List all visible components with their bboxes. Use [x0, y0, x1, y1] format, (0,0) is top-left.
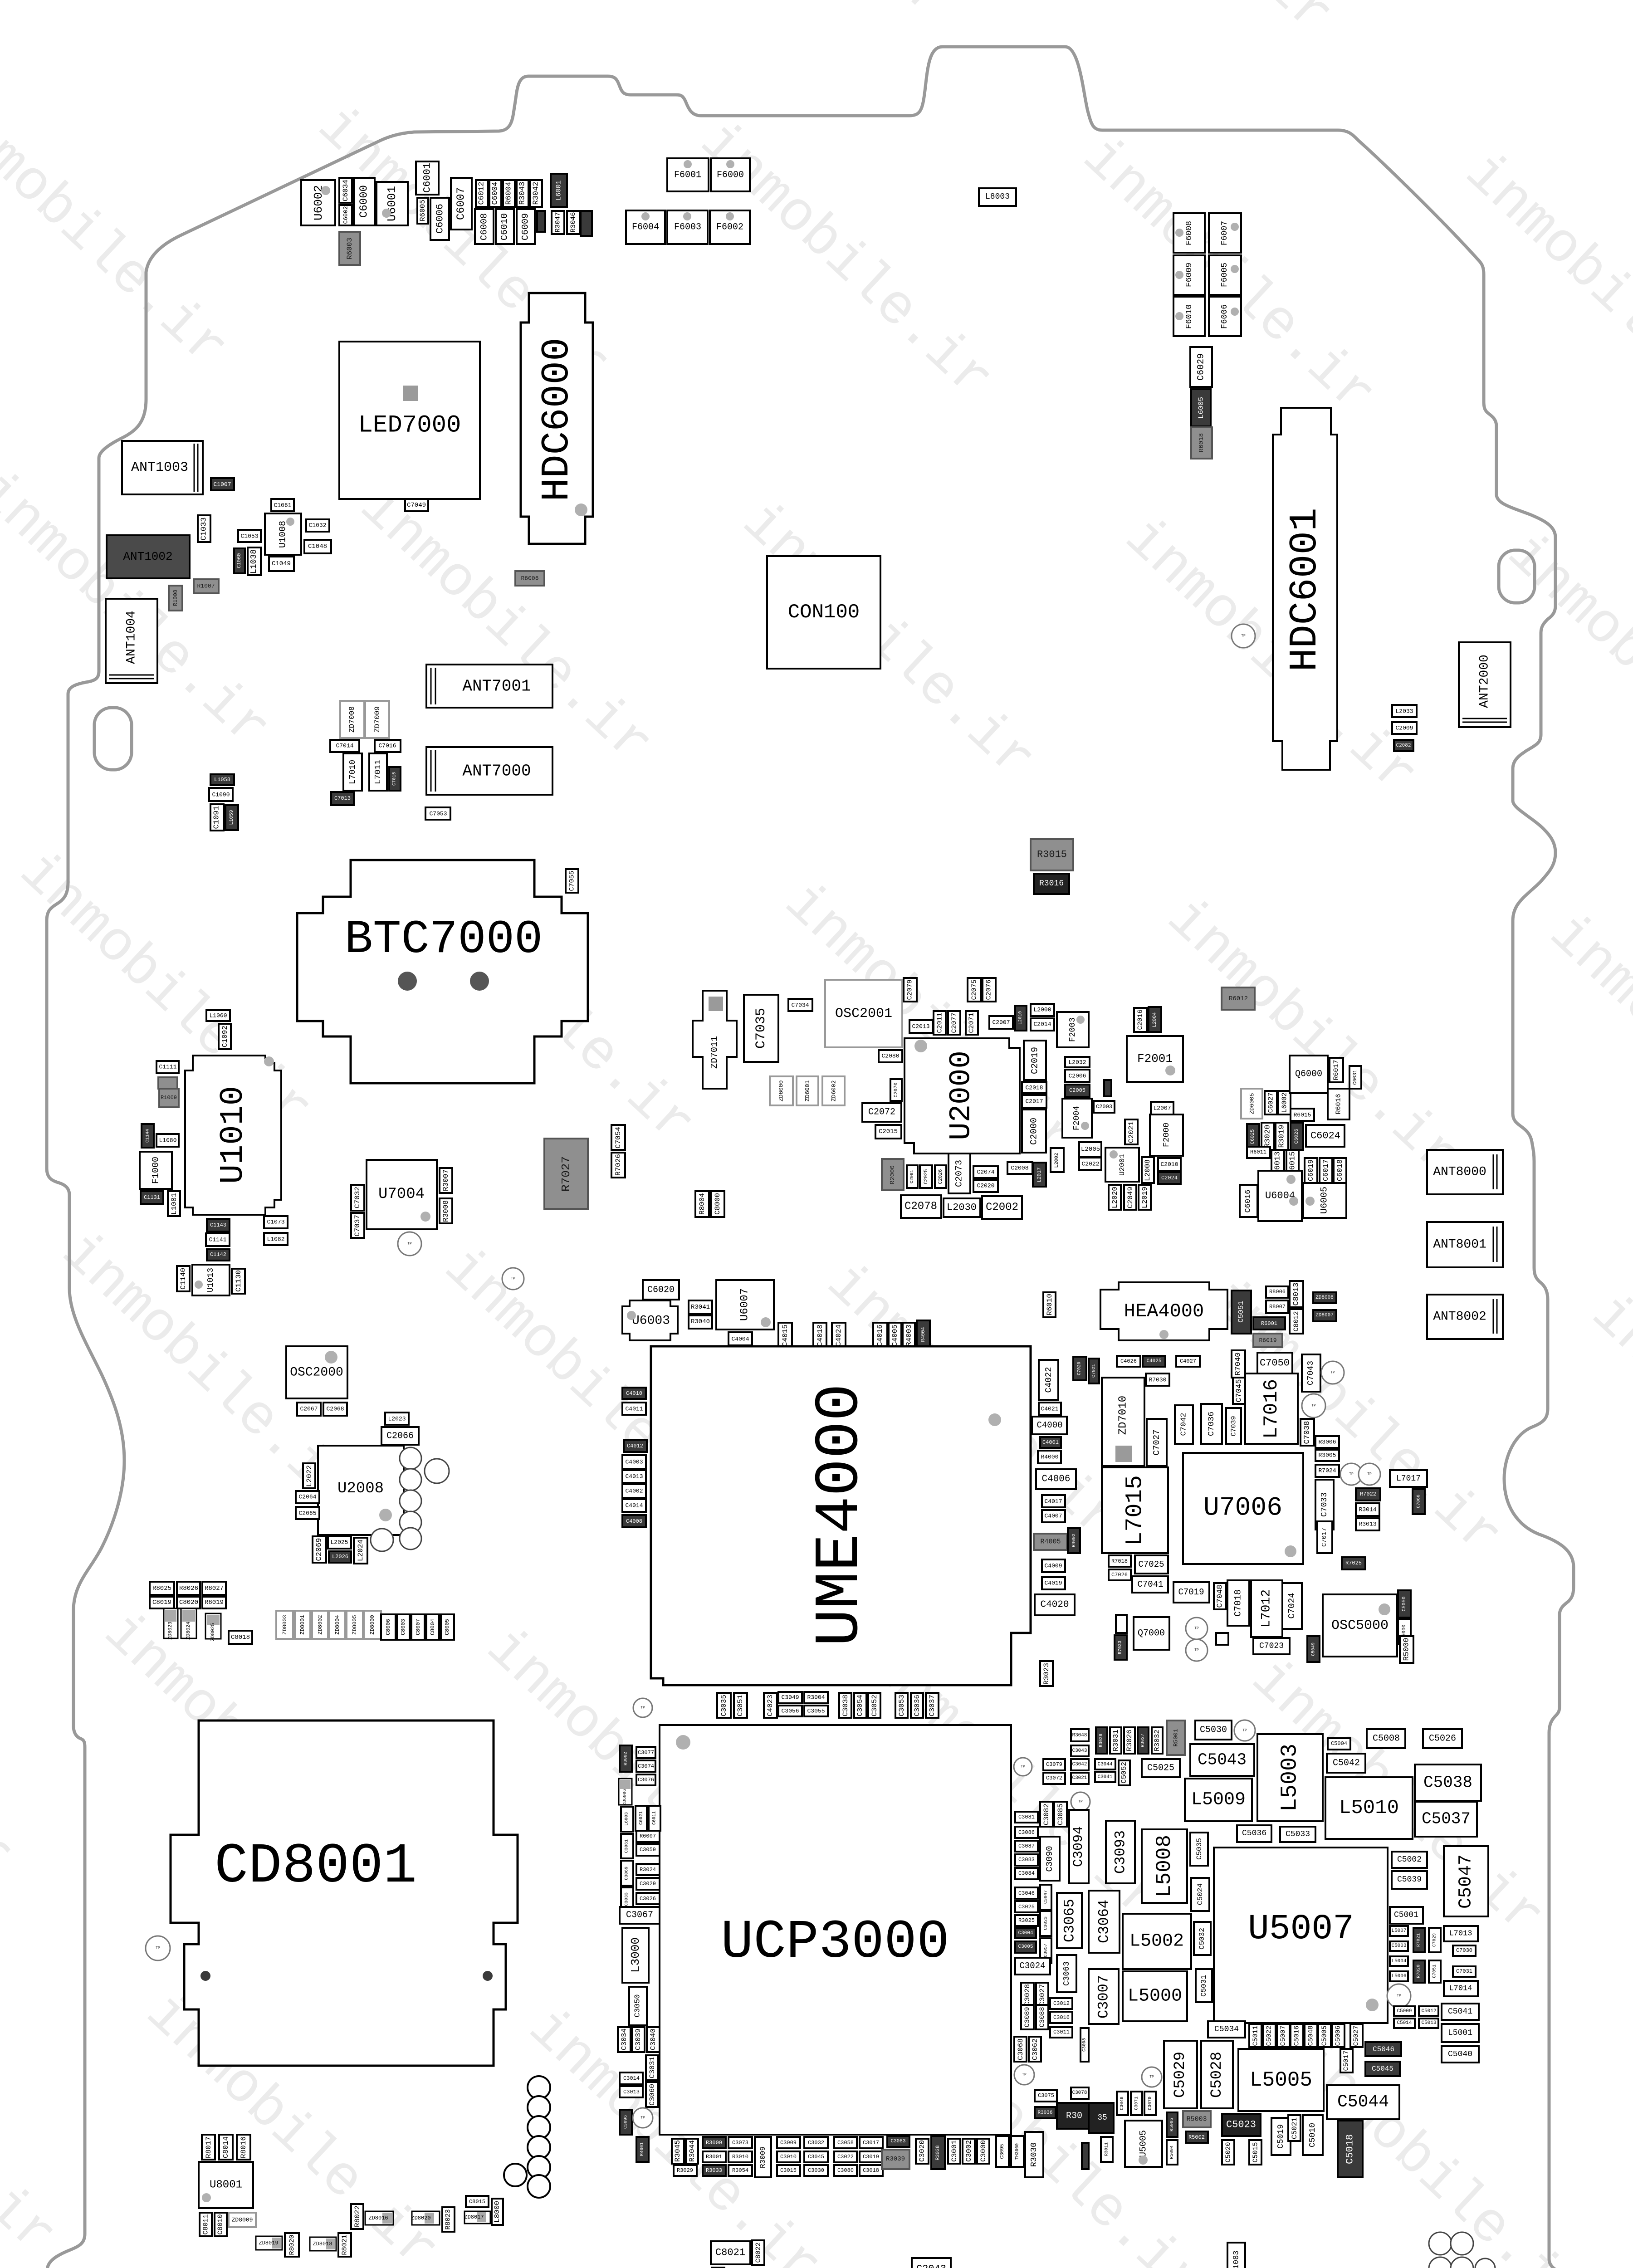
- svg-text:U5005: U5005: [1139, 2130, 1149, 2157]
- svg-text:C3063: C3063: [1062, 1961, 1071, 1986]
- svg-text:R8007: R8007: [1269, 1304, 1286, 1310]
- svg-text:C3012: C3012: [1053, 2000, 1070, 2007]
- svg-text:R7026: R7026: [614, 1154, 622, 1176]
- svg-text:ZD7010: ZD7010: [1117, 1396, 1129, 1435]
- svg-text:L7011: L7011: [374, 760, 383, 784]
- svg-text:C5007: C5007: [1280, 2025, 1287, 2046]
- svg-text:C7045: C7045: [1235, 1379, 1244, 1402]
- svg-text:C1140: C1140: [179, 1268, 187, 1290]
- svg-text:C4002: C4002: [625, 1488, 643, 1495]
- svg-text:inmobile.ir: inmobile.ir: [0, 1585, 26, 1887]
- svg-text:C7066: C7066: [1417, 1495, 1422, 1508]
- svg-text:C2082: C2082: [1396, 743, 1411, 748]
- svg-text:R3046: R3046: [570, 212, 577, 232]
- svg-text:C1131: C1131: [144, 1194, 160, 1201]
- svg-text:ZD6000: ZD6000: [778, 1080, 785, 1102]
- svg-text:C1007: C1007: [213, 481, 231, 488]
- svg-text:R3033: R3033: [706, 2167, 722, 2174]
- svg-text:C4017: C4017: [1044, 1498, 1062, 1505]
- svg-text:TP: TP: [640, 1706, 645, 1710]
- svg-text:TH3000: TH3000: [1015, 2143, 1020, 2160]
- svg-text:C2080: C2080: [881, 1053, 899, 1060]
- svg-text:R3039: R3039: [886, 2156, 905, 2163]
- svg-text:C3023: C3023: [1044, 1916, 1049, 1930]
- svg-text:ZD8001: ZD8001: [299, 1615, 306, 1634]
- svg-text:R8019: R8019: [205, 1599, 224, 1606]
- svg-text:C6019: C6019: [1307, 1159, 1315, 1181]
- svg-text:R3045: R3045: [674, 2140, 682, 2162]
- svg-text:C5023: C5023: [1226, 2119, 1256, 2131]
- svg-text:TP: TP: [1349, 1472, 1354, 1476]
- svg-text:L5004: L5004: [1391, 1959, 1406, 1964]
- svg-text:U1008: U1008: [278, 521, 288, 548]
- svg-text:C3007: C3007: [1095, 1975, 1112, 2019]
- svg-text:R3011: R3011: [1105, 2142, 1110, 2156]
- svg-text:C1091: C1091: [213, 806, 221, 829]
- svg-text:U8001: U8001: [210, 2179, 242, 2191]
- svg-text:inmobile.ir: inmobile.ir: [645, 0, 962, 32]
- svg-text:ZD6002: ZD6002: [831, 1080, 837, 1102]
- svg-text:R3027: R3027: [1141, 1734, 1146, 1747]
- svg-text:R6016: R6016: [1335, 1094, 1343, 1114]
- svg-text:C2002: C2002: [986, 1202, 1018, 1214]
- svg-text:C3087: C3087: [1018, 1843, 1035, 1849]
- svg-text:C7055: C7055: [568, 870, 576, 891]
- svg-text:C3082: C3082: [1042, 1804, 1051, 1825]
- svg-text:C3033: C3033: [625, 1892, 630, 1906]
- svg-text:C3045: C3045: [808, 2154, 824, 2160]
- svg-text:C2021: C2021: [1127, 1121, 1135, 1143]
- svg-text:C5035: C5035: [1195, 1838, 1203, 1860]
- svg-text:C7050: C7050: [1260, 1358, 1290, 1369]
- svg-text:TP: TP: [511, 1277, 515, 1281]
- svg-text:C7042: C7042: [1180, 1413, 1188, 1436]
- svg-text:R6007: R6007: [640, 1833, 656, 1839]
- svg-text:C4016: C4016: [876, 1325, 884, 1346]
- svg-text:C5045: C5045: [1372, 2065, 1393, 2073]
- svg-text:R3043: R3043: [518, 181, 527, 205]
- svg-text:ZD8004: ZD8004: [334, 1615, 341, 1634]
- svg-text:F2003: F2003: [1068, 1017, 1077, 1042]
- svg-text:C8021: C8021: [715, 2247, 745, 2258]
- svg-text:C5016: C5016: [1293, 2025, 1301, 2046]
- svg-text:F2000: F2000: [1162, 1123, 1171, 1147]
- svg-text:C7024: C7024: [1287, 1593, 1297, 1618]
- svg-text:R4005: R4005: [1040, 1538, 1061, 1546]
- svg-text:C7027: C7027: [1152, 1429, 1162, 1455]
- svg-text:L2004: L2004: [1152, 1012, 1158, 1027]
- svg-text:R2000: R2000: [889, 1165, 896, 1184]
- svg-text:C7023: C7023: [1259, 1642, 1284, 1651]
- svg-text:LED7000: LED7000: [358, 412, 461, 440]
- svg-text:TP: TP: [156, 1946, 160, 1950]
- svg-text:R30: R30: [1066, 2111, 1082, 2121]
- svg-text:L8003: L8003: [985, 192, 1010, 201]
- svg-text:L7016: L7016: [1260, 1379, 1283, 1439]
- svg-text:C5038: C5038: [1423, 1774, 1472, 1792]
- svg-text:R6010: R6010: [1046, 1294, 1054, 1315]
- svg-text:C5020: C5020: [1225, 2142, 1232, 2162]
- svg-text:C7025: C7025: [1138, 1559, 1164, 1569]
- svg-text:F2001: F2001: [1137, 1052, 1173, 1066]
- svg-text:R7040: R7040: [1234, 1352, 1243, 1375]
- svg-text:R3025: R3025: [1018, 1917, 1035, 1924]
- svg-text:C6026: C6026: [1294, 1129, 1300, 1144]
- svg-text:C8013: C8013: [1292, 1282, 1301, 1305]
- svg-text:C3077: C3077: [638, 1750, 654, 1756]
- svg-text:L7017: L7017: [1396, 1474, 1421, 1483]
- svg-text:C1144: C1144: [146, 1129, 151, 1143]
- svg-text:C2081: C2081: [910, 1170, 915, 1183]
- svg-text:C3041: C3041: [1097, 1774, 1112, 1780]
- svg-text:C1130: C1130: [235, 1270, 243, 1292]
- svg-text:L1058: L1058: [214, 777, 230, 783]
- svg-text:C7041: C7041: [1137, 1579, 1163, 1589]
- svg-text:C3086: C3086: [1018, 1829, 1035, 1836]
- svg-text:C6008: C6008: [479, 213, 490, 240]
- svg-text:C2049: C2049: [1126, 1187, 1134, 1208]
- svg-text:TP: TP: [1022, 2073, 1027, 2077]
- svg-text:ANT2000: ANT2000: [1478, 655, 1492, 708]
- svg-text:R3038: R3038: [935, 2145, 941, 2160]
- svg-text:R6005: R6005: [419, 200, 427, 221]
- svg-text:ZD8007: ZD8007: [1315, 1313, 1334, 1318]
- svg-text:ZD8025: ZD8025: [210, 1623, 216, 1641]
- svg-text:C6009: C6009: [521, 213, 531, 240]
- svg-text:C8010: C8010: [217, 2214, 225, 2234]
- svg-text:C8019: C8019: [152, 1599, 171, 1606]
- svg-text:C1033: C1033: [200, 517, 209, 540]
- svg-text:C8015: C8015: [469, 2199, 485, 2205]
- svg-text:L7013: L7013: [1449, 1930, 1472, 1938]
- svg-text:C4007: C4007: [1044, 1513, 1062, 1520]
- svg-text:C5051: C5051: [1237, 1301, 1245, 1323]
- svg-text:C1060: C1060: [237, 553, 242, 568]
- svg-text:C3062: C3062: [1031, 2038, 1039, 2060]
- svg-text:C2026: C2026: [938, 1169, 944, 1184]
- svg-text:R6018: R6018: [1198, 433, 1205, 452]
- svg-text:C2024: C2024: [1161, 1175, 1178, 1181]
- svg-text:C7016: C7016: [378, 743, 396, 749]
- svg-text:C3032: C3032: [808, 2140, 824, 2146]
- svg-text:C3061: C3061: [625, 1839, 630, 1853]
- svg-text:R8022: R8022: [353, 2205, 362, 2227]
- svg-text:L5007: L5007: [1391, 1928, 1406, 1934]
- svg-text:C7031: C7031: [1456, 1968, 1472, 1975]
- svg-text:L2007: L2007: [1153, 1105, 1171, 1112]
- svg-text:U2001: U2001: [1118, 1154, 1126, 1176]
- svg-text:C4024: C4024: [835, 1325, 843, 1346]
- svg-text:TP: TP: [1242, 1729, 1247, 1733]
- svg-text:ANT1004: ANT1004: [125, 611, 139, 664]
- svg-text:R8020: R8020: [288, 2234, 296, 2255]
- svg-text:C7038: C7038: [1303, 1421, 1312, 1444]
- svg-text:ZD7011: ZD7011: [710, 1036, 720, 1069]
- svg-text:C4019: C4019: [1044, 1580, 1062, 1587]
- svg-text:CON100: CON100: [788, 601, 860, 624]
- svg-text:C2007: C2007: [992, 1019, 1010, 1026]
- svg-text:C2019: C2019: [1030, 1047, 1041, 1074]
- svg-text:ZD8005: ZD8005: [352, 1615, 358, 1634]
- svg-text:C2069: C2069: [315, 1538, 324, 1561]
- svg-text:inmobile.ir: inmobile.ir: [1494, 521, 1633, 824]
- svg-text:C1090: C1090: [212, 792, 230, 798]
- svg-text:C3026: C3026: [640, 1896, 656, 1902]
- svg-text:L7015: L7015: [1122, 1475, 1149, 1546]
- svg-text:ZD7008: ZD7008: [348, 706, 356, 733]
- svg-text:U7004: U7004: [378, 1186, 425, 1203]
- svg-text:C6016: C6016: [1244, 1189, 1253, 1212]
- svg-text:R7033: R7033: [1118, 1641, 1123, 1654]
- svg-text:C3083: C3083: [890, 2139, 905, 2144]
- svg-text:ZD7009: ZD7009: [373, 706, 381, 733]
- svg-text:C5028: C5028: [1208, 2052, 1226, 2098]
- svg-text:L2019: L2019: [1141, 1187, 1149, 1208]
- svg-text:L7012: L7012: [1260, 1589, 1274, 1628]
- svg-text:C2009: C2009: [1395, 725, 1413, 732]
- svg-text:C4009: C4009: [1044, 1563, 1062, 1569]
- svg-text:C5011: C5011: [1252, 2025, 1260, 2046]
- svg-text:TP: TP: [640, 2116, 645, 2120]
- svg-text:F6010: F6010: [1185, 304, 1194, 329]
- svg-text:L2030: L2030: [947, 1202, 977, 1213]
- svg-text:R3014: R3014: [1359, 1506, 1376, 1513]
- svg-text:C7053: C7053: [429, 811, 447, 817]
- svg-text:R3026: R3026: [1125, 1730, 1134, 1751]
- svg-text:U1013: U1013: [206, 1268, 215, 1292]
- svg-text:L6003: L6003: [625, 1812, 630, 1826]
- svg-text:C3020: C3020: [918, 2140, 926, 2162]
- svg-text:C3070: C3070: [1148, 2097, 1153, 2110]
- svg-text:C3042: C3042: [1072, 1762, 1087, 1767]
- svg-text:R3007: R3007: [442, 1169, 450, 1191]
- svg-text:ZD8018: ZD8018: [313, 2241, 332, 2247]
- svg-text:C7051: C7051: [1433, 1965, 1437, 1978]
- svg-text:C2066: C2066: [386, 1431, 414, 1442]
- svg-text:C5015: C5015: [1252, 2142, 1260, 2162]
- svg-text:CD8001: CD8001: [215, 1835, 417, 1899]
- svg-text:C5047: C5047: [1456, 1854, 1477, 1909]
- svg-text:HEA4000: HEA4000: [1124, 1300, 1204, 1322]
- svg-text:R3009: R3009: [759, 2146, 767, 2168]
- svg-text:TP: TP: [1149, 2075, 1154, 2079]
- svg-text:ZD8020: ZD8020: [411, 2215, 430, 2221]
- svg-text:C7018: C7018: [1233, 1589, 1244, 1617]
- svg-text:R3002: R3002: [624, 1752, 629, 1765]
- svg-text:C5024: C5024: [1196, 1883, 1204, 1905]
- svg-text:F6008: F6008: [1185, 221, 1194, 245]
- svg-text:F6006: F6006: [1220, 304, 1229, 329]
- svg-text:C3052: C3052: [870, 1695, 879, 1716]
- svg-text:C8000: C8000: [714, 1193, 722, 1215]
- svg-text:C3031: C3031: [648, 2057, 656, 2078]
- svg-text:C5025: C5025: [1147, 1763, 1174, 1774]
- svg-text:C5022: C5022: [1266, 2025, 1273, 2046]
- svg-text:ZD8016: ZD8016: [368, 2215, 388, 2221]
- svg-text:R3006: R3006: [1318, 1439, 1336, 1446]
- svg-text:C4010: C4010: [626, 1390, 642, 1397]
- svg-text:C6034: C6034: [342, 180, 350, 201]
- svg-text:R3020: R3020: [1264, 1124, 1272, 1148]
- svg-text:C3035: C3035: [720, 1695, 728, 1716]
- svg-text:C3065: C3065: [1061, 1899, 1078, 1942]
- svg-text:L5002: L5002: [1129, 1931, 1184, 1952]
- svg-text:R3016: R3016: [1039, 879, 1064, 888]
- svg-text:R3041: R3041: [691, 1304, 710, 1311]
- svg-text:C3050: C3050: [634, 1994, 642, 2017]
- svg-text:R6012: R6012: [1229, 995, 1248, 1002]
- svg-text:F6004: F6004: [632, 222, 659, 233]
- svg-text:R7025: R7025: [1345, 1560, 1362, 1566]
- svg-text:C5006: C5006: [1335, 2025, 1342, 2046]
- svg-text:C7035: C7035: [753, 1008, 769, 1049]
- svg-text:R5004: R5004: [1170, 2146, 1175, 2159]
- svg-text:R3031: R3031: [1112, 1730, 1120, 1751]
- svg-text:inmobile.ir: inmobile.ir: [0, 1965, 68, 2268]
- svg-text:C5003: C5003: [1391, 1943, 1406, 1949]
- svg-text:C5048: C5048: [1307, 2025, 1315, 2046]
- svg-text:C1111: C1111: [159, 1064, 176, 1070]
- svg-text:L1082: L1082: [267, 1236, 284, 1243]
- svg-text:C3055: C3055: [807, 1708, 825, 1715]
- svg-text:C3017: C3017: [863, 2140, 879, 2146]
- svg-text:C6020: C6020: [647, 1285, 675, 1295]
- svg-text:R8016: R8016: [240, 2136, 248, 2158]
- svg-text:C2073: C2073: [954, 1160, 965, 1187]
- svg-text:C5018: C5018: [1345, 2134, 1356, 2164]
- svg-text:C6027: C6027: [1267, 1092, 1275, 1113]
- svg-text:C3083: C3083: [1018, 1857, 1035, 1863]
- svg-text:C1092: C1092: [221, 1026, 229, 1047]
- svg-text:C2003: C2003: [1096, 1104, 1112, 1110]
- svg-text:R8006: R8006: [1269, 1289, 1286, 1295]
- svg-text:C4008: C4008: [626, 1518, 642, 1525]
- svg-text:ZD8024: ZD8024: [186, 1622, 191, 1640]
- svg-text:C2018: C2018: [1025, 1085, 1043, 1091]
- svg-text:R8004: R8004: [698, 1193, 706, 1215]
- svg-text:C1032: C1032: [308, 522, 326, 529]
- svg-text:R3040: R3040: [691, 1318, 710, 1325]
- svg-text:C8018: C8018: [231, 1634, 250, 1641]
- svg-text:R3019: R3019: [1278, 1124, 1286, 1148]
- svg-text:R3010: R3010: [732, 2154, 748, 2160]
- svg-text:C6021: C6021: [639, 1811, 644, 1825]
- svg-text:C3095: C3095: [1000, 2144, 1005, 2159]
- svg-text:TP: TP: [1194, 1627, 1199, 1631]
- svg-text:C6006: C6006: [435, 204, 446, 234]
- svg-text:inmobile.ir: inmobile.ir: [1410, 0, 1633, 63]
- svg-text:C3011: C3011: [1053, 2029, 1070, 2035]
- svg-text:C4004: C4004: [731, 1336, 749, 1343]
- svg-text:C6018: C6018: [1336, 1159, 1344, 1181]
- svg-text:R7021: R7021: [1417, 1933, 1422, 1947]
- svg-text:C3096: C3096: [624, 2115, 629, 2129]
- svg-text:C3081: C3081: [1018, 1814, 1035, 1820]
- svg-text:C3079: C3079: [1046, 1761, 1062, 1768]
- svg-text:R6004: R6004: [505, 181, 513, 205]
- svg-text:C8006: C8006: [385, 1619, 391, 1635]
- svg-text:C4026: C4026: [1120, 1358, 1137, 1364]
- svg-text:C3016: C3016: [1053, 2014, 1070, 2021]
- svg-text:C3014: C3014: [623, 2075, 640, 2082]
- svg-text:R3004: R3004: [807, 1694, 825, 1701]
- svg-text:R8023: R8023: [445, 2209, 452, 2229]
- svg-text:L2020: L2020: [1111, 1187, 1119, 1208]
- svg-text:C6012: C6012: [478, 181, 486, 205]
- svg-text:R3028: R3028: [1099, 1734, 1104, 1747]
- svg-text:C4012: C4012: [627, 1443, 643, 1449]
- svg-text:L2010: L2010: [1018, 1011, 1023, 1025]
- svg-text:C4000: C4000: [1037, 1420, 1062, 1430]
- svg-text:C3034: C3034: [620, 2028, 628, 2050]
- svg-text:C2043: C2043: [916, 2263, 946, 2268]
- svg-text:C7049: C7049: [407, 502, 426, 509]
- svg-text:C6011: C6011: [652, 1811, 657, 1825]
- svg-text:inmobile.ir: inmobile.ir: [0, 0, 197, 0]
- svg-text:C2078: C2078: [905, 1201, 937, 1213]
- svg-text:ANT7000: ANT7000: [462, 762, 531, 781]
- svg-text:C5010: C5010: [1308, 2123, 1317, 2147]
- svg-text:F6003: F6003: [674, 222, 701, 233]
- svg-text:R3048: R3048: [1072, 1733, 1087, 1738]
- svg-text:inmobile.ir: inmobile.ir: [1536, 902, 1633, 1204]
- svg-text:L2005: L2005: [1081, 1146, 1100, 1153]
- svg-text:R6017: R6017: [1333, 1060, 1340, 1080]
- svg-text:C7033: C7033: [1320, 1492, 1329, 1517]
- svg-text:R3008: R3008: [442, 1200, 450, 1222]
- svg-text:L2033: L2033: [1395, 708, 1413, 715]
- svg-text:C7036: C7036: [1207, 1412, 1216, 1436]
- svg-text:inmobile.ir: inmobile.ir: [262, 0, 580, 16]
- svg-text:ZD8023: ZD8023: [168, 1622, 173, 1640]
- svg-text:C7017: C7017: [1321, 1528, 1328, 1547]
- svg-text:ANT1003: ANT1003: [131, 460, 188, 475]
- svg-text:C6024: C6024: [1310, 1130, 1340, 1142]
- svg-text:R8025: R8025: [152, 1585, 171, 1592]
- svg-text:C3054: C3054: [856, 1695, 864, 1716]
- svg-text:R8027: R8027: [205, 1585, 224, 1592]
- svg-text:L6002: L6002: [1281, 1092, 1289, 1113]
- svg-text:R4003: R4003: [905, 1325, 913, 1346]
- svg-text:C6001: C6001: [422, 163, 433, 193]
- svg-text:R4001: R4001: [640, 2142, 645, 2156]
- svg-text:TP: TP: [407, 1242, 412, 1246]
- svg-text:C3027: C3027: [1038, 1984, 1046, 2006]
- svg-text:C5013: C5013: [1421, 2020, 1436, 2026]
- svg-text:C1053: C1053: [240, 533, 258, 540]
- svg-text:U5007: U5007: [1248, 1909, 1354, 1949]
- svg-text:R3044: R3044: [688, 2140, 696, 2162]
- svg-text:C5032: C5032: [1198, 1928, 1206, 1950]
- svg-text:C3009: C3009: [780, 2140, 797, 2146]
- svg-text:inmobile.ir: inmobile.ir: [1452, 141, 1633, 443]
- svg-text:C3069: C3069: [625, 1867, 630, 1880]
- svg-text:C5043: C5043: [1198, 1751, 1247, 1769]
- svg-text:C6031: C6031: [1353, 1070, 1358, 1085]
- svg-text:C8005: C8005: [444, 1619, 450, 1635]
- svg-text:TP: TP: [1330, 1371, 1335, 1375]
- svg-text:ZD8009: ZD8009: [232, 2217, 253, 2224]
- svg-text:C4025: C4025: [1146, 1359, 1161, 1364]
- svg-text:L5005: L5005: [1250, 2068, 1312, 2092]
- svg-text:L5003: L5003: [1277, 1744, 1303, 1812]
- svg-text:C3057: C3057: [1044, 1944, 1049, 1957]
- svg-text:HDC6000: HDC6000: [535, 337, 579, 501]
- svg-text:R6019: R6019: [1259, 1337, 1276, 1344]
- svg-text:R5005: R5005: [1170, 2118, 1175, 2131]
- svg-text:F6007: F6007: [1220, 221, 1229, 245]
- svg-text:ZD8019: ZD8019: [259, 2240, 278, 2246]
